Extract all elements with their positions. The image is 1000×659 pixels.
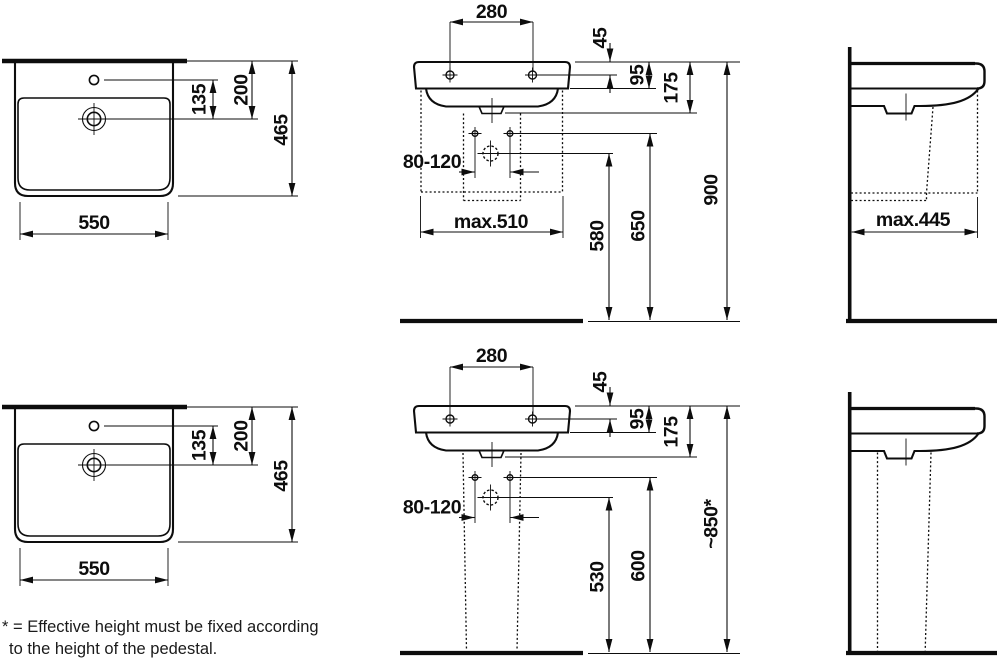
- dim-label-80-120: 80-120: [403, 151, 462, 173]
- pedestal-dashed-outline: [878, 453, 932, 651]
- dim-label-200: 200: [231, 74, 253, 106]
- ext-line: [450, 367, 533, 415]
- dim-label-45: 45: [590, 27, 612, 48]
- dim-label-135: 135: [189, 83, 211, 115]
- dim-label-530: 530: [587, 561, 609, 593]
- footnote-line-2: to the height of the pedestal.: [9, 640, 217, 658]
- ext-line: [450, 22, 533, 71]
- dim-label-max445: max.445: [876, 209, 951, 231]
- dim-label-175: 175: [661, 416, 683, 448]
- dim-label-600: 600: [628, 550, 650, 582]
- dim-label-280: 280: [476, 345, 508, 367]
- dim-label-850: ~850*: [701, 498, 723, 548]
- view-side-wall-mounted: max.445: [846, 47, 997, 321]
- view-top-pedestal: 135 200 465 550: [2, 407, 298, 586]
- technical-drawing-canvas: 135 200 465 550 280 45 95 175 max.510 80…: [0, 0, 1000, 659]
- view-front-wall-mounted: 280 45 95 175 max.510 80-120 580 650 900: [400, 1, 740, 322]
- drawing-sheet: 135 200 465 550 280 45 95 175 max.510 80…: [0, 0, 1000, 659]
- footnote-line-1: * = Effective height must be fixed accor…: [2, 618, 319, 636]
- dim-label-95: 95: [627, 64, 649, 85]
- dim-label-280: 280: [476, 1, 508, 23]
- ext-line: [498, 62, 740, 154]
- dim-label-175: 175: [661, 72, 683, 104]
- dim-label-200: 200: [231, 420, 253, 452]
- pedestal-dashed-outline: [463, 453, 521, 651]
- view-top-wall-mounted: 135 200 465 550: [2, 61, 298, 240]
- footnote: * = Effective height must be fixed accor…: [2, 618, 319, 658]
- dim-label-580: 580: [587, 220, 609, 252]
- view-side-pedestal: [846, 392, 997, 653]
- dim-label-95: 95: [627, 408, 649, 429]
- dim-label-max510: max.510: [454, 211, 529, 233]
- dim-label-45: 45: [590, 371, 612, 392]
- dim-label-900: 900: [701, 174, 723, 206]
- dim-label-465: 465: [271, 114, 293, 146]
- ext-line: [498, 406, 740, 498]
- dim-label-135: 135: [189, 429, 211, 461]
- dim-label-465: 465: [271, 460, 293, 492]
- dim-label-550: 550: [78, 558, 110, 580]
- dim-label-80-120: 80-120: [403, 497, 462, 519]
- dim-label-650: 650: [628, 210, 650, 242]
- view-front-pedestal: 280 45 95 175 80-120 530 600 ~850*: [400, 345, 740, 654]
- dim-label-550: 550: [78, 212, 110, 234]
